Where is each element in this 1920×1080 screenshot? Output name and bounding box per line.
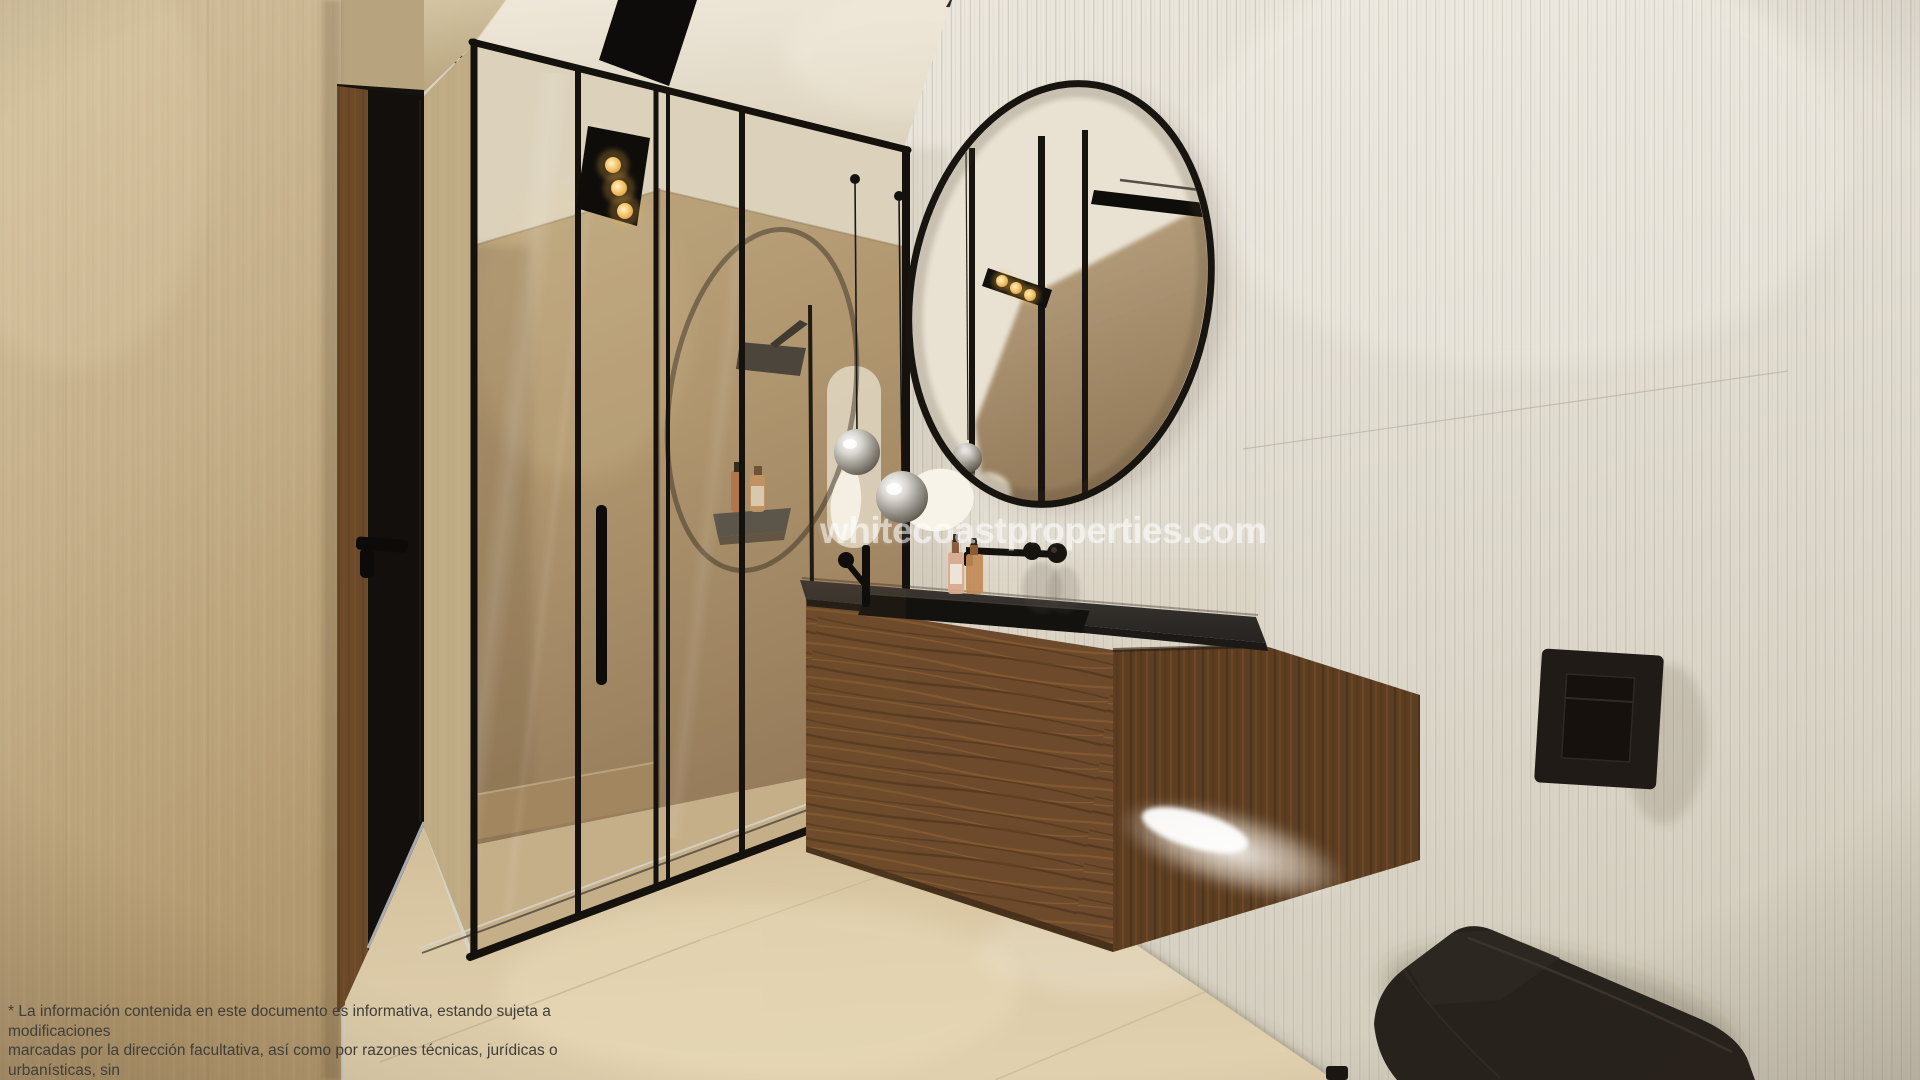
vignette [0,0,1920,1080]
scene-graphics [0,0,1920,1080]
bathroom-render: whitecoastproperties.com * La informació… [0,0,1920,1080]
